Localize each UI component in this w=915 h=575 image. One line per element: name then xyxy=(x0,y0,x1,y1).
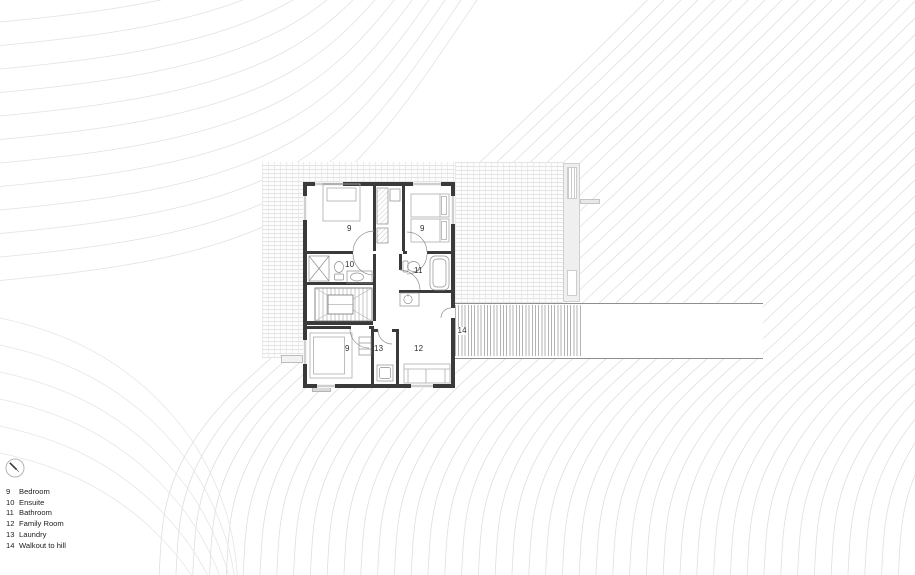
stairs-symbol xyxy=(315,288,372,321)
room-label-family-room: 12 xyxy=(414,345,423,353)
legend-item: 9Bedroom xyxy=(6,487,66,498)
legend-label: Laundry xyxy=(19,530,46,539)
room-label-ensuite: 10 xyxy=(345,261,354,269)
room-label-bedroom-top-right: 9 xyxy=(420,225,425,233)
floor-plan xyxy=(303,182,455,388)
legend-label: Family Room xyxy=(19,519,64,528)
room-label-walkout: 14 xyxy=(456,327,468,335)
legend-label: Walkout to hill xyxy=(19,541,66,550)
terrace-hatch-right xyxy=(455,162,563,303)
legend-number: 12 xyxy=(6,519,19,530)
structure-panel xyxy=(567,270,577,296)
legend-number: 13 xyxy=(6,530,19,541)
room-label-bathroom: 11 xyxy=(414,267,423,275)
legend-item: 11Bathroom xyxy=(6,508,66,519)
legend-number: 14 xyxy=(6,541,19,552)
ramp-decking-hatch xyxy=(455,305,581,356)
exterior-landing xyxy=(281,355,303,363)
legend-label: Bathroom xyxy=(19,508,52,517)
structure-louver-panel xyxy=(567,167,577,199)
floor-plan-sheet: 9 9 10 11 9 13 12 14 9Bedroom 10Ensuite … xyxy=(0,0,915,575)
terrace-hatch-top xyxy=(303,162,455,182)
legend-item: 12Family Room xyxy=(6,519,66,530)
legend-label: Ensuite xyxy=(19,498,44,507)
room-label-laundry: 13 xyxy=(374,345,383,353)
walkout-ramp xyxy=(455,303,763,359)
terrace-hatch-left xyxy=(262,162,303,358)
exterior-wall-structure xyxy=(563,163,580,302)
legend-number: 9 xyxy=(6,487,19,498)
exterior-ledge xyxy=(580,199,600,204)
legend: 9Bedroom 10Ensuite 11Bathroom 12Family R… xyxy=(6,487,66,551)
legend-item: 13Laundry xyxy=(6,530,66,541)
legend-item: 14Walkout to hill xyxy=(6,541,66,552)
north-arrow-icon xyxy=(4,457,26,479)
legend-number: 11 xyxy=(6,508,19,519)
legend-number: 10 xyxy=(6,498,19,509)
legend-label: Bedroom xyxy=(19,487,50,496)
legend-item: 10Ensuite xyxy=(6,498,66,509)
room-label-bedroom-lower: 9 xyxy=(345,345,350,353)
room-label-bedroom-top-left: 9 xyxy=(347,225,352,233)
